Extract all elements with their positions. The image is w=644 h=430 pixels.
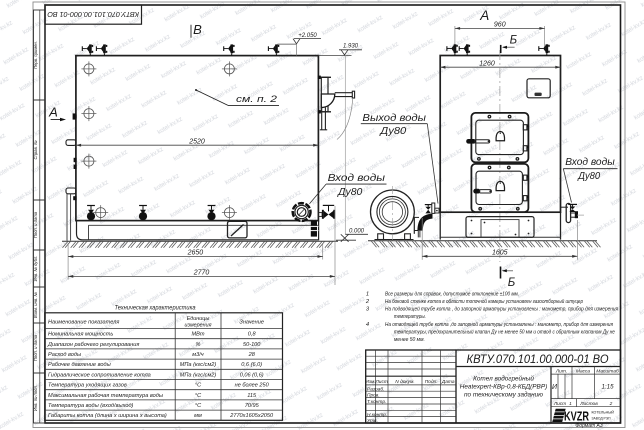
- svg-text:Вход воды: Вход воды: [328, 173, 386, 184]
- svg-text:0.000: 0.000: [349, 228, 365, 234]
- svg-text:Дата: Дата: [441, 379, 455, 385]
- svg-text:°С: °С: [195, 393, 202, 399]
- svg-text:70/95: 70/95: [245, 403, 260, 409]
- svg-text:4: 4: [366, 322, 369, 328]
- svg-text:МПа (кгс/см2): МПа (кгс/см2): [180, 372, 217, 378]
- svg-text:КВТУ.070.101.00.000-01 ВО: КВТУ.070.101.00.000-01 ВО: [467, 352, 609, 366]
- svg-text:Утв.: Утв.: [367, 418, 378, 424]
- svg-text:Лит.: Лит.: [555, 368, 567, 374]
- svg-text:+2.050: +2.050: [298, 33, 317, 39]
- svg-text:Гидравлическое сопротивление к: Гидравлическое сопротивление котла: [48, 372, 151, 378]
- svg-text:Подп. и дата: Подп. и дата: [33, 334, 38, 361]
- svg-text:960: 960: [494, 22, 506, 29]
- svg-text:1605: 1605: [492, 249, 508, 256]
- svg-text:Взам. инв. №: Взам. инв. №: [33, 292, 38, 318]
- svg-text:МПа (кгс/см2): МПа (кгс/см2): [180, 362, 217, 368]
- svg-text:Ду80: Ду80: [337, 187, 363, 198]
- svg-text:1.930: 1.930: [343, 43, 359, 49]
- svg-text:Подп. и дата: Подп. и дата: [33, 211, 38, 238]
- svg-text:Выход воды: Выход воды: [362, 113, 426, 124]
- svg-text:см. п. 2: см. п. 2: [236, 94, 277, 104]
- svg-text:Пров.: Пров.: [367, 393, 380, 399]
- svg-text:°С: °С: [195, 383, 202, 389]
- svg-text:На боковой стенке котла в обла: На боковой стенке котла в области топочн…: [385, 298, 584, 305]
- svg-text:не более 250: не более 250: [235, 383, 270, 389]
- svg-text:Наименование показателя: Наименование показателя: [48, 319, 119, 325]
- svg-text:Справ. №: Справ. №: [33, 140, 38, 159]
- svg-text:Ду80: Ду80: [379, 126, 406, 137]
- svg-text:0,8: 0,8: [248, 332, 257, 338]
- svg-text:2770х1605х2050: 2770х1605х2050: [229, 413, 274, 419]
- svg-text:КОТЕЛЬНЫЙ: КОТЕЛЬНЫЙ: [592, 409, 615, 414]
- svg-text:Техническая характеристика: Техническая характеристика: [115, 304, 196, 311]
- svg-text:1260: 1260: [479, 60, 495, 67]
- svg-text:Разраб.: Разраб.: [367, 386, 384, 392]
- svg-text:Температура воды (вход/выход): Температура воды (вход/выход): [48, 403, 134, 409]
- svg-text:Ду80: Ду80: [577, 171, 600, 182]
- svg-text:Вход воды: Вход воды: [565, 157, 615, 168]
- svg-text:Значение: Значение: [239, 319, 264, 325]
- svg-text:Формат А3: Формат А3: [575, 423, 603, 429]
- svg-text:Б: Б: [508, 277, 516, 289]
- svg-text:Т.контр.: Т.контр.: [367, 399, 386, 405]
- svg-text:ЗАВОД РЭП: ЗАВОД РЭП: [592, 415, 611, 420]
- svg-text:Температура уходящих газов: Температура уходящих газов: [48, 383, 127, 389]
- svg-text:Все размеры для справок, допус: Все размеры для справок, допустимое откл…: [385, 292, 519, 298]
- svg-text:115: 115: [247, 393, 257, 399]
- svg-text:Инв. № дубл.: Инв. № дубл.: [33, 256, 38, 282]
- svg-text:Единицы: Единицы: [187, 316, 210, 322]
- svg-text:%: %: [196, 342, 201, 348]
- svg-text:1: 1: [366, 292, 369, 298]
- svg-text:N докум.: N докум.: [395, 379, 414, 385]
- svg-text:м3/ч: м3/ч: [192, 352, 203, 358]
- svg-text:Лист: Лист: [375, 379, 388, 385]
- svg-text:МВт: МВт: [191, 332, 204, 338]
- svg-text:Масштаб: Масштаб: [596, 368, 619, 374]
- svg-text:мм: мм: [194, 413, 202, 419]
- svg-text:Перв. примен.: Перв. примен.: [33, 41, 38, 69]
- svg-text:KVZR: KVZR: [564, 409, 589, 424]
- svg-text:Котел водогрейный: Котел водогрейный: [473, 375, 534, 383]
- svg-text:Максимальная рабочая температу: Максимальная рабочая температура воды: [48, 393, 163, 399]
- svg-text:А: А: [48, 105, 58, 120]
- svg-text:Номинальная мощность: Номинальная мощность: [48, 332, 113, 338]
- svg-text:измерения: измерения: [185, 323, 212, 329]
- svg-text:Листов: Листов: [579, 401, 598, 407]
- svg-text:Расход воды: Расход воды: [48, 352, 81, 358]
- svg-text:Лист: Лист: [553, 401, 566, 407]
- svg-text:28: 28: [248, 352, 256, 358]
- svg-text:Изм.: Изм.: [365, 379, 375, 385]
- svg-text:0,06 (0,6): 0,06 (0,6): [240, 372, 264, 378]
- svg-text:В: В: [193, 22, 202, 37]
- svg-text:°С: °С: [195, 403, 202, 409]
- svg-text:по техническому заданию: по техническому заданию: [464, 391, 543, 399]
- svg-text:Инв. № подл.: Инв. № подл.: [33, 385, 38, 411]
- svg-text:Heatexpert-КВр-0,8-КБД(РВР): Heatexpert-КВр-0,8-КБД(РВР): [460, 384, 547, 391]
- svg-text:Н.контр.: Н.контр.: [367, 412, 387, 418]
- svg-text:Б: Б: [510, 34, 518, 46]
- svg-text:2: 2: [609, 401, 613, 407]
- svg-text:На подводящей трубе котла , д: На подводящей трубе котла , до запорной …: [385, 306, 618, 313]
- svg-text:0,6 (6,0): 0,6 (6,0): [241, 362, 262, 368]
- svg-text:1:15: 1:15: [601, 384, 614, 391]
- svg-text:Рабочее давление воды: Рабочее давление воды: [48, 362, 111, 368]
- svg-text:2520: 2520: [188, 138, 205, 145]
- svg-text:На отводящей трубе котла ,до з: На отводящей трубе котла ,до запорной ар…: [385, 321, 613, 328]
- svg-text:А: А: [479, 8, 489, 23]
- svg-text:1: 1: [569, 401, 572, 407]
- svg-text:50-100: 50-100: [243, 342, 261, 348]
- svg-text:Диапазон рабочего регулировани: Диапазон рабочего регулирования: [47, 342, 139, 348]
- svg-text:Подп.: Подп.: [425, 379, 438, 385]
- svg-text:температуры, предохранительный: температуры, предохранительный клапан Ду…: [394, 328, 616, 335]
- svg-text:2650: 2650: [187, 250, 204, 257]
- svg-text:2770: 2770: [193, 270, 210, 277]
- svg-text:Габариты котла (длина х ширина: Габариты котла (длина х ширина х высота): [48, 413, 167, 419]
- svg-text:температуры.: температуры.: [394, 314, 426, 320]
- svg-text:Масса: Масса: [576, 368, 591, 374]
- svg-text:менее 50 мм.: менее 50 мм.: [394, 337, 425, 343]
- svg-text:КВТУ.070.101.00.000-01 ВО: КВТУ.070.101.00.000-01 ВО: [47, 10, 139, 19]
